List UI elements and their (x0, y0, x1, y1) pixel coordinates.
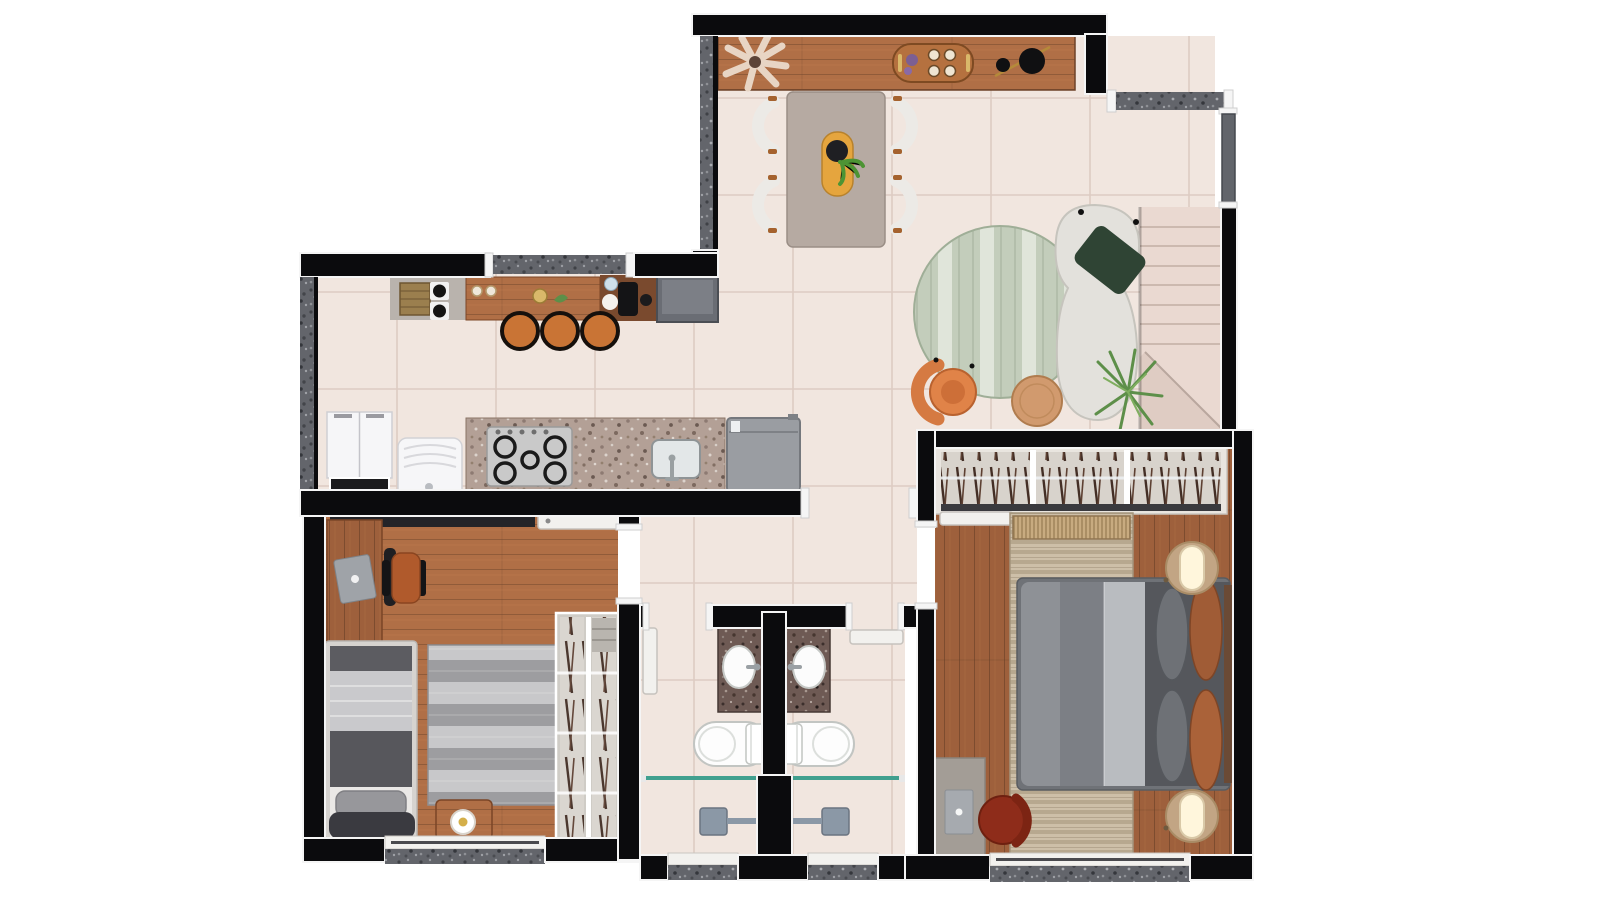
wall-living-top (692, 14, 1107, 36)
wall-bath-plumbing-column (757, 775, 792, 860)
toilet (694, 722, 768, 766)
floor-plan-canvas (0, 0, 1600, 900)
window-master (990, 853, 1190, 882)
wall-master-bottom-left (905, 855, 990, 880)
wall-kitchen-top-left (300, 253, 490, 277)
wall-bath2-bottom (878, 855, 905, 880)
kitchen-sink (652, 440, 700, 481)
glowing-lamp (1180, 546, 1204, 590)
gray-pillow (1156, 690, 1188, 782)
red-desk-chair (979, 796, 1027, 844)
entry-door-leaf (1222, 114, 1235, 202)
duvet-fold (1060, 582, 1104, 786)
headboard (1224, 585, 1232, 783)
open-closet (935, 446, 1227, 514)
window-bathroom1 (668, 853, 738, 880)
wall-master-bottom-right (1190, 855, 1253, 880)
black-planter (826, 140, 848, 162)
bedroom2-door-leaf (940, 512, 1013, 525)
wall-bedroom1-left (303, 516, 325, 838)
quilted-runner (1104, 582, 1145, 786)
blanket-fold-dark (330, 646, 412, 671)
woven-bench (1013, 516, 1130, 539)
single-bed (325, 641, 417, 839)
wall-bath-center (762, 612, 786, 778)
wall-kitchen-left-edge (314, 277, 318, 494)
wall-master-right (1233, 430, 1253, 880)
laptop (333, 554, 376, 604)
wall-bath-bottom-center (738, 855, 808, 880)
wardrobe-drawers (592, 618, 616, 652)
dark-duvet (329, 812, 415, 839)
window-kitchen (485, 253, 634, 277)
refrigerator-top (662, 280, 713, 314)
wall-kitchen-top-right (634, 253, 718, 277)
wall-bedroom1-bottom-left (303, 838, 385, 862)
wall-bath1-bottom (640, 855, 668, 880)
hallway-floor (640, 512, 917, 612)
bar-stools (502, 313, 618, 349)
closet-shadow (941, 504, 1221, 511)
striped-gray-rug (428, 645, 558, 805)
wall-living-right (1221, 204, 1237, 434)
wall-living-step (1085, 34, 1107, 94)
granite-counter (466, 418, 725, 490)
washing-machine (727, 414, 800, 492)
floor-plan (0, 0, 1600, 900)
wall-bedroom1-right-lower (618, 600, 640, 860)
open-wardrobe (556, 613, 620, 857)
wall-kitchen-bottom (300, 490, 805, 516)
toilet (780, 722, 854, 766)
staircase (1140, 207, 1223, 430)
wall-master-left-lower (917, 605, 935, 860)
master-desk (935, 758, 985, 855)
rust-pillow (1190, 690, 1222, 790)
window-bathroom2 (808, 853, 878, 880)
rust-pillow (1190, 580, 1222, 680)
double-bed (1017, 578, 1232, 790)
gas-cooktop (487, 427, 572, 486)
wood-ottoman (436, 800, 492, 839)
window-bedroom1 (385, 836, 545, 864)
bathroom1-door-leaf (643, 628, 657, 694)
glowing-lamp (1180, 794, 1204, 838)
bathroom2-door-leaf (850, 630, 903, 644)
base-cabinet-white (327, 412, 392, 498)
wall-master-left-upper (917, 430, 935, 527)
glass-clamp (899, 775, 905, 782)
wall-master-top (917, 430, 1253, 448)
wall-living-left-edge (713, 36, 718, 258)
gray-pillow (1156, 588, 1188, 680)
window-top-right (1107, 90, 1233, 112)
blanket-dark (330, 731, 412, 787)
serving-tray (893, 44, 973, 82)
